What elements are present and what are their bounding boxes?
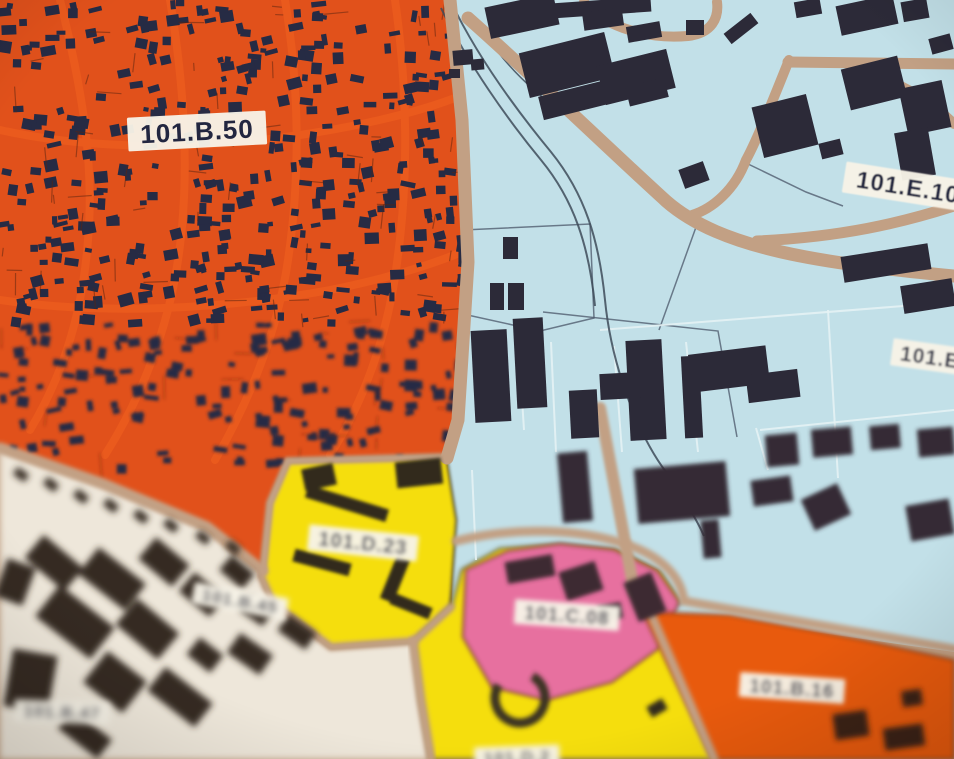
house-footprint	[185, 369, 192, 377]
house-footprint	[381, 363, 389, 372]
house-footprint	[135, 243, 145, 254]
house-footprint	[288, 338, 302, 347]
house-footprint	[85, 28, 97, 38]
house-footprint	[0, 7, 11, 16]
house-footprint	[39, 335, 50, 347]
zoning-map-photo: 101.B.50101.E.10101.E101.D.23101.C.08101…	[0, 0, 954, 759]
house-footprint	[19, 19, 27, 26]
house-footprint	[389, 102, 394, 109]
house-footprint	[45, 35, 59, 41]
house-footprint	[364, 102, 377, 108]
house-footprint	[291, 208, 299, 216]
house-footprint	[312, 198, 321, 208]
house-footprint	[434, 241, 446, 249]
building-footprint	[508, 283, 524, 310]
house-footprint	[206, 318, 213, 322]
building-footprint	[503, 237, 518, 259]
house-footprint	[303, 318, 309, 323]
house-footprint	[345, 414, 353, 420]
house-footprint	[342, 158, 355, 168]
house-footprint	[157, 450, 169, 456]
house-footprint	[67, 208, 78, 220]
house-footprint	[29, 41, 39, 47]
house-footprint	[138, 291, 148, 303]
house-footprint	[217, 245, 227, 254]
house-footprint	[429, 80, 439, 91]
house-footprint	[274, 143, 284, 152]
building-footprint	[471, 58, 485, 70]
house-footprint	[353, 119, 361, 125]
house-footprint	[75, 301, 83, 311]
house-footprint	[148, 383, 157, 392]
house-footprint	[86, 339, 92, 351]
parcel-scratch-line	[377, 204, 396, 205]
house-footprint	[429, 322, 438, 333]
building-footprint	[765, 433, 800, 468]
house-footprint	[13, 106, 24, 113]
building-footprint	[471, 329, 512, 423]
house-footprint	[16, 396, 29, 408]
house-footprint	[400, 310, 410, 316]
house-footprint	[128, 319, 143, 328]
house-footprint	[18, 358, 28, 366]
building-footprint	[869, 424, 901, 451]
house-footprint	[220, 87, 226, 94]
building-footprint	[811, 426, 853, 457]
house-footprint	[321, 15, 327, 20]
house-footprint	[266, 249, 271, 257]
house-footprint	[322, 387, 328, 393]
house-footprint	[105, 375, 111, 384]
house-footprint	[224, 56, 231, 66]
house-footprint	[96, 93, 106, 101]
house-footprint	[243, 190, 255, 200]
house-footprint	[117, 464, 127, 474]
house-footprint	[17, 199, 26, 206]
parcel-scratch-line	[307, 244, 308, 261]
house-footprint	[346, 266, 359, 275]
house-footprint	[148, 41, 158, 54]
house-footprint	[212, 403, 221, 408]
house-footprint	[277, 94, 290, 107]
house-footprint	[140, 24, 149, 33]
house-footprint	[334, 42, 343, 49]
house-footprint	[60, 242, 74, 252]
house-footprint	[118, 334, 128, 342]
house-footprint	[358, 216, 371, 228]
house-footprint	[400, 245, 414, 252]
house-footprint	[224, 266, 236, 272]
house-footprint	[94, 171, 109, 184]
house-footprint	[399, 161, 407, 168]
parcel-scratch-line	[84, 375, 104, 376]
house-footprint	[1, 25, 16, 35]
house-footprint	[441, 330, 452, 341]
house-footprint	[332, 152, 343, 158]
house-footprint	[258, 223, 269, 233]
house-footprint	[343, 424, 350, 429]
house-footprint	[182, 345, 192, 352]
house-footprint	[251, 333, 267, 347]
house-footprint	[42, 441, 56, 447]
house-footprint	[264, 293, 271, 300]
house-footprint	[302, 382, 318, 394]
house-footprint	[264, 323, 272, 328]
house-footprint	[320, 243, 331, 249]
house-footprint	[152, 163, 159, 169]
house-footprint	[428, 157, 435, 164]
house-footprint	[311, 62, 322, 74]
house-footprint	[128, 338, 141, 348]
building-footprint	[557, 451, 593, 523]
house-footprint	[450, 196, 458, 206]
zone-label-text: 101.B.50	[140, 113, 255, 149]
house-footprint	[140, 200, 147, 205]
building-footprint	[395, 458, 443, 489]
building-footprint	[569, 389, 599, 438]
house-footprint	[436, 186, 446, 195]
house-footprint	[199, 224, 210, 231]
house-footprint	[278, 312, 284, 320]
building-footprint	[905, 498, 954, 541]
house-footprint	[40, 260, 48, 265]
house-footprint	[269, 426, 279, 436]
house-footprint	[322, 208, 335, 220]
house-footprint	[298, 50, 305, 60]
house-footprint	[45, 237, 51, 243]
house-footprint	[84, 300, 98, 309]
house-footprint	[13, 346, 25, 358]
house-footprint	[357, 329, 365, 339]
house-footprint	[176, 0, 184, 6]
house-footprint	[389, 292, 394, 301]
house-footprint	[19, 387, 25, 392]
house-footprint	[344, 354, 358, 366]
house-footprint	[52, 216, 57, 224]
house-footprint	[157, 97, 167, 110]
house-footprint	[353, 296, 360, 304]
house-footprint	[30, 167, 41, 175]
house-footprint	[309, 142, 321, 155]
house-footprint	[228, 362, 235, 368]
house-footprint	[96, 188, 107, 193]
house-footprint	[323, 291, 333, 299]
house-footprint	[333, 52, 344, 64]
house-footprint	[413, 247, 423, 253]
house-footprint	[256, 323, 264, 328]
house-footprint	[200, 107, 205, 111]
house-footprint	[364, 232, 379, 244]
house-footprint	[30, 245, 38, 252]
house-footprint	[163, 457, 171, 463]
house-footprint	[313, 85, 321, 94]
zone-label-text: 101.D.2	[483, 747, 550, 759]
house-footprint	[405, 359, 417, 370]
house-footprint	[423, 148, 434, 157]
house-footprint	[291, 162, 297, 172]
house-footprint	[78, 221, 93, 231]
building-footprint	[452, 49, 473, 66]
house-footprint	[66, 349, 72, 356]
house-footprint	[71, 179, 81, 186]
parcel-scratch-line	[289, 300, 309, 301]
house-footprint	[66, 38, 76, 48]
house-footprint	[230, 185, 238, 191]
house-footprint	[187, 215, 195, 224]
house-footprint	[383, 193, 391, 201]
house-footprint	[221, 386, 230, 398]
house-footprint	[421, 6, 429, 18]
house-footprint	[430, 50, 442, 61]
house-footprint	[163, 286, 175, 300]
house-footprint	[250, 173, 259, 184]
house-footprint	[302, 74, 308, 81]
house-footprint	[442, 282, 457, 287]
house-footprint	[54, 278, 63, 284]
house-footprint	[143, 107, 149, 112]
building-footprint	[688, 388, 698, 396]
building-footprint	[901, 689, 923, 708]
house-footprint	[68, 8, 78, 18]
building-footprint	[599, 372, 640, 400]
house-footprint	[255, 415, 270, 428]
house-footprint	[327, 354, 334, 358]
house-footprint	[433, 388, 446, 400]
building-footprint	[832, 710, 869, 740]
parcel-scratch-line	[143, 282, 167, 283]
house-footprint	[300, 230, 306, 238]
house-footprint	[199, 203, 206, 214]
house-footprint	[301, 157, 313, 168]
house-footprint	[31, 62, 42, 70]
house-footprint	[390, 269, 405, 279]
house-footprint	[27, 443, 38, 454]
house-footprint	[170, 0, 176, 9]
house-footprint	[418, 31, 426, 36]
house-footprint	[272, 435, 284, 447]
house-footprint	[405, 402, 417, 410]
zone-label-101-b-47: 101.B.47	[14, 699, 110, 724]
house-footprint	[0, 394, 7, 403]
house-footprint	[147, 192, 157, 200]
house-footprint	[413, 391, 421, 397]
house-footprint	[388, 223, 395, 233]
house-footprint	[90, 151, 96, 161]
house-footprint	[377, 283, 391, 294]
house-footprint	[211, 221, 220, 226]
house-footprint	[414, 229, 427, 241]
house-footprint	[196, 395, 207, 406]
house-footprint	[163, 37, 171, 46]
parcel-scratch-line	[194, 63, 195, 71]
house-footprint	[94, 367, 102, 375]
house-footprint	[26, 324, 32, 336]
house-footprint	[57, 31, 66, 35]
house-footprint	[52, 252, 63, 262]
house-footprint	[79, 315, 88, 324]
house-footprint	[306, 106, 317, 114]
house-footprint	[123, 168, 132, 175]
building-footprint	[686, 20, 704, 35]
house-footprint	[13, 59, 21, 67]
house-footprint	[371, 140, 381, 152]
house-footprint	[248, 254, 264, 265]
house-footprint	[0, 40, 12, 54]
building-footprint	[634, 461, 730, 524]
parcel-scratch-line	[89, 32, 110, 33]
house-footprint	[322, 124, 332, 129]
house-footprint	[132, 384, 145, 397]
house-footprint	[349, 179, 361, 186]
house-footprint	[40, 289, 49, 297]
house-footprint	[383, 92, 398, 98]
house-footprint	[218, 229, 230, 241]
house-footprint	[343, 200, 355, 208]
house-footprint	[57, 397, 66, 407]
house-footprint	[207, 298, 214, 306]
house-footprint	[272, 370, 286, 376]
house-footprint	[245, 275, 252, 283]
house-footprint	[306, 273, 321, 281]
house-footprint	[110, 401, 118, 409]
house-footprint	[90, 280, 95, 287]
parcel-scratch-line	[272, 61, 273, 78]
house-footprint	[283, 134, 296, 142]
house-footprint	[8, 184, 19, 196]
building-footprint	[513, 317, 548, 408]
building-footprint	[700, 519, 721, 558]
house-footprint	[74, 116, 87, 127]
house-footprint	[446, 207, 454, 218]
house-footprint	[426, 129, 439, 140]
house-footprint	[77, 287, 84, 293]
building-footprint	[490, 283, 504, 310]
house-footprint	[200, 194, 212, 203]
house-footprint	[177, 102, 186, 108]
house-footprint	[301, 46, 315, 51]
building-footprint	[917, 426, 954, 457]
building-footprint	[449, 69, 460, 78]
house-footprint	[412, 74, 419, 81]
house-footprint	[312, 13, 324, 22]
house-footprint	[216, 272, 224, 280]
house-footprint	[294, 9, 302, 18]
house-footprint	[69, 435, 84, 445]
house-footprint	[223, 203, 235, 212]
building-footprint	[750, 475, 793, 506]
house-footprint	[171, 273, 180, 281]
house-footprint	[316, 187, 324, 194]
house-footprint	[266, 304, 277, 310]
house-footprint	[327, 319, 335, 326]
zoning-map-svg: 101.B.50101.E.10101.E101.D.23101.C.08101…	[0, 0, 954, 759]
house-footprint	[270, 130, 280, 141]
house-footprint	[307, 262, 317, 270]
house-footprint	[319, 340, 327, 348]
house-footprint	[314, 41, 324, 49]
house-footprint	[348, 252, 354, 264]
house-footprint	[309, 131, 317, 143]
house-footprint	[18, 377, 26, 383]
parcel-scratch-line	[221, 379, 243, 380]
house-footprint	[359, 125, 368, 135]
house-footprint	[186, 336, 198, 344]
house-footprint	[291, 331, 300, 338]
house-footprint	[384, 43, 391, 53]
house-footprint	[414, 329, 425, 342]
zone-label-text: 101.B.47	[23, 702, 101, 724]
house-footprint	[32, 124, 42, 129]
house-footprint	[399, 381, 408, 386]
house-footprint	[76, 370, 89, 381]
parcel-scratch-line	[19, 349, 29, 350]
house-footprint	[39, 323, 50, 334]
house-footprint	[415, 381, 423, 390]
parcel-scratch-line	[52, 181, 53, 203]
house-footprint	[234, 460, 245, 466]
house-footprint	[404, 51, 416, 63]
house-footprint	[7, 224, 14, 231]
house-footprint	[415, 81, 430, 92]
house-footprint	[274, 402, 283, 413]
house-footprint	[222, 215, 231, 222]
house-footprint	[259, 285, 269, 293]
